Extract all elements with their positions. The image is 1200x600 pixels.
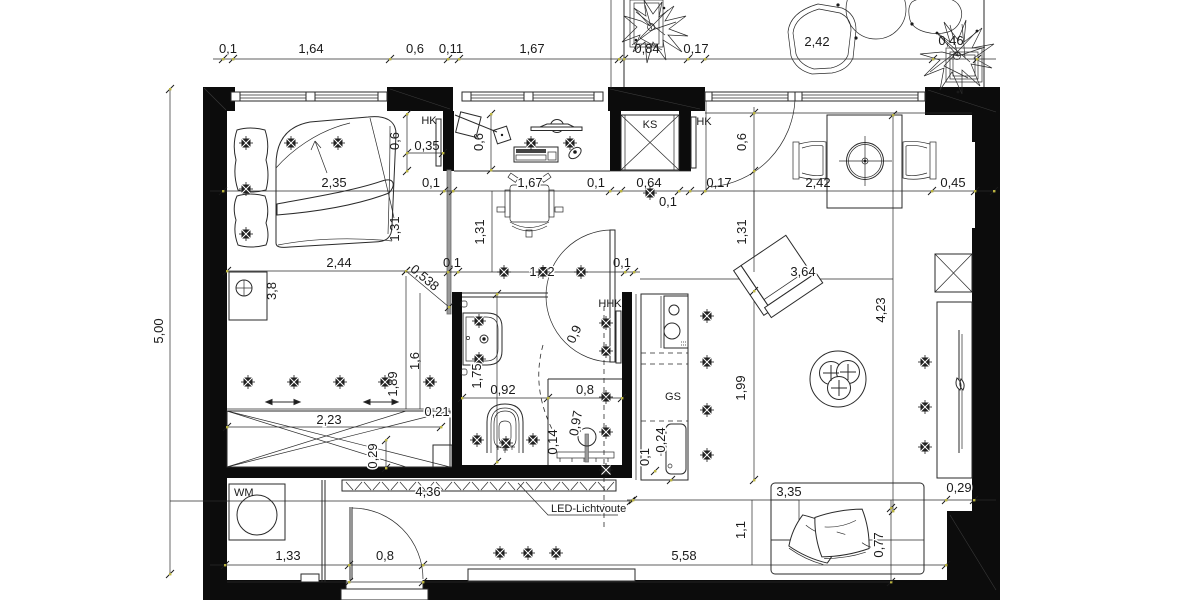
svg-text:0,24: 0,24 [653, 427, 668, 452]
svg-text:2,23: 2,23 [316, 412, 341, 427]
svg-text:0,21: 0,21 [424, 404, 449, 419]
svg-text:1,31: 1,31 [472, 219, 487, 244]
svg-text:1,75: 1,75 [469, 363, 484, 388]
svg-text:KS: KS [643, 119, 658, 131]
svg-text:3,35: 3,35 [776, 484, 801, 499]
svg-text:0,14: 0,14 [545, 429, 560, 454]
svg-text:0,45: 0,45 [940, 175, 965, 190]
svg-text:0,17: 0,17 [683, 41, 708, 56]
svg-text:0,8: 0,8 [376, 548, 394, 563]
svg-text:1,31: 1,31 [734, 219, 749, 244]
svg-text:1,99: 1,99 [733, 375, 748, 400]
svg-text:5,00: 5,00 [151, 318, 166, 343]
svg-text:0,84: 0,84 [634, 41, 659, 56]
svg-text:0,6: 0,6 [387, 132, 402, 150]
svg-text:HK: HK [696, 116, 712, 128]
svg-text:0,17: 0,17 [706, 175, 731, 190]
svg-text:0,77: 0,77 [871, 532, 886, 557]
svg-text:3,8: 3,8 [264, 282, 279, 300]
svg-text:2,42: 2,42 [805, 175, 830, 190]
svg-text:0,29: 0,29 [946, 480, 971, 495]
svg-text:0,1: 0,1 [443, 255, 461, 270]
svg-text:HHK: HHK [598, 298, 622, 310]
svg-text:HK: HK [421, 115, 437, 127]
svg-text:1,6: 1,6 [407, 352, 422, 370]
svg-text:0,29: 0,29 [365, 443, 380, 468]
svg-text:2,44: 2,44 [326, 255, 351, 270]
svg-text:1,67: 1,67 [517, 175, 542, 190]
svg-text:0,6: 0,6 [471, 133, 486, 151]
svg-text:3,64: 3,64 [790, 264, 815, 279]
svg-text:0,6: 0,6 [406, 41, 424, 56]
svg-text:2,42: 2,42 [804, 34, 829, 49]
svg-text:4,36: 4,36 [415, 484, 440, 499]
svg-text:1,1: 1,1 [733, 521, 748, 539]
svg-text:2,35: 2,35 [321, 175, 346, 190]
svg-text:0,64: 0,64 [636, 175, 661, 190]
svg-text:1,64: 1,64 [298, 41, 323, 56]
svg-text:0,6: 0,6 [734, 133, 749, 151]
svg-text:0,92: 0,92 [490, 382, 515, 397]
svg-text:0,1: 0,1 [219, 41, 237, 56]
svg-text:0,1: 0,1 [659, 194, 677, 209]
svg-text:4,23: 4,23 [873, 297, 888, 322]
svg-text:0,1: 0,1 [637, 448, 652, 466]
svg-text:0,11: 0,11 [439, 41, 463, 56]
svg-text:1,33: 1,33 [275, 548, 300, 563]
svg-text:1,67: 1,67 [519, 41, 544, 56]
svg-text:LED-Lichtvoute: LED-Lichtvoute [551, 503, 626, 515]
svg-text:0,1: 0,1 [422, 175, 440, 190]
svg-text:WM: WM [234, 487, 254, 499]
svg-text:GS: GS [665, 391, 681, 403]
svg-text:0,1: 0,1 [587, 175, 605, 190]
svg-text:0,46: 0,46 [938, 33, 963, 48]
svg-text:1,31: 1,31 [387, 216, 402, 241]
svg-text:0,8: 0,8 [576, 382, 594, 397]
svg-text:5,58: 5,58 [671, 548, 696, 563]
svg-text:0,35: 0,35 [414, 138, 439, 153]
svg-text:0,1: 0,1 [613, 255, 631, 270]
